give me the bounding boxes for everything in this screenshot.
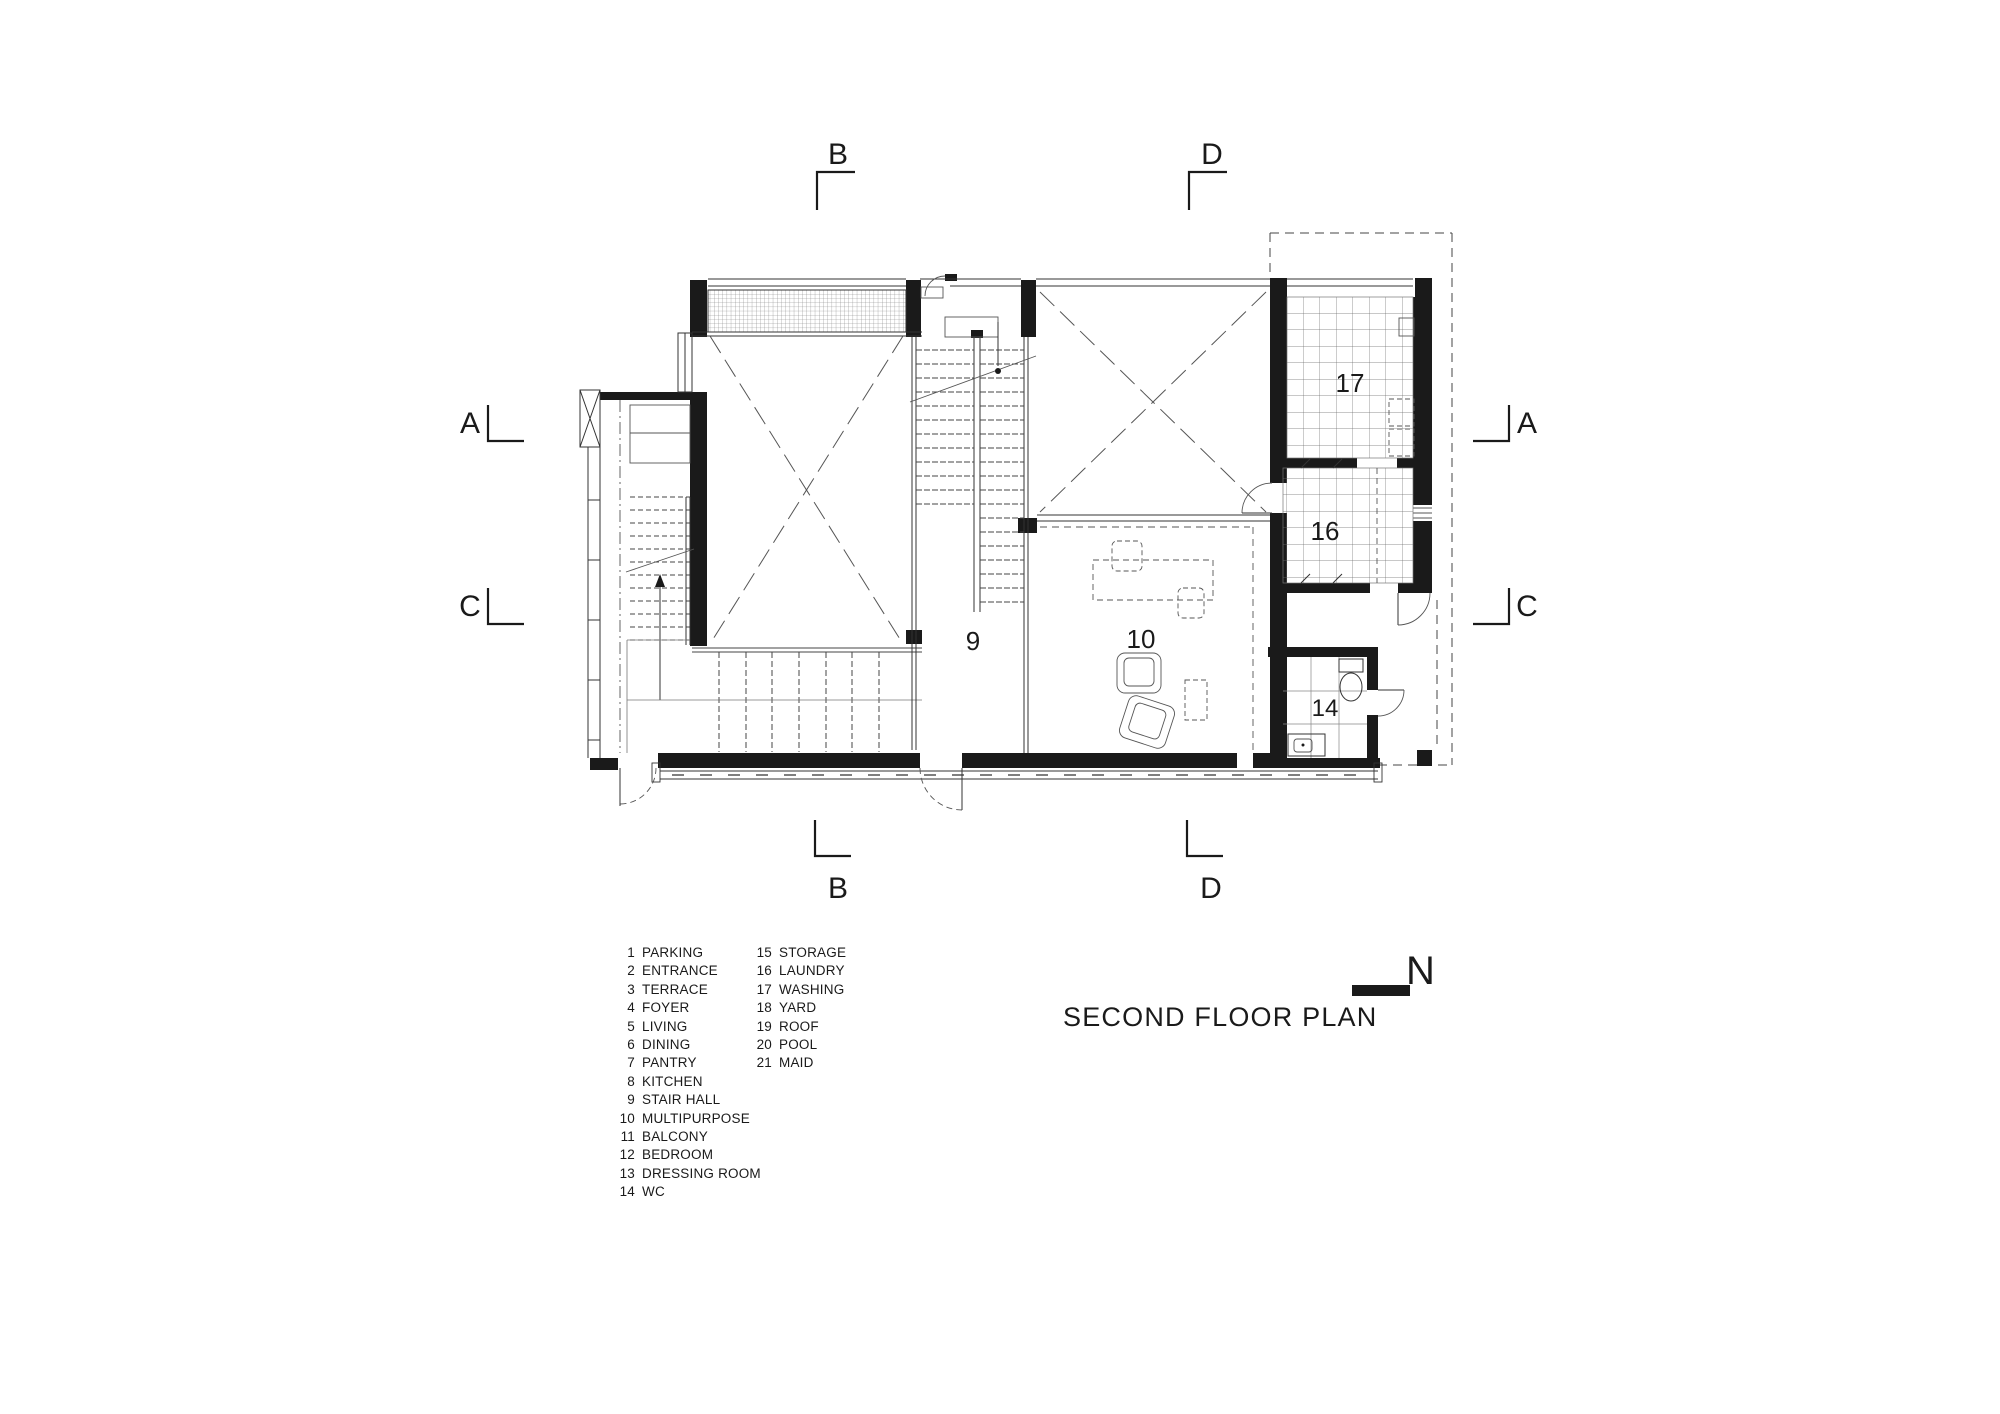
section-mark-c-right [1473, 588, 1509, 624]
section-mark-b-bottom [815, 820, 851, 856]
legend-item: 17WASHING [722, 981, 846, 999]
legend-item: 11BALCONY [585, 1128, 761, 1146]
side-chair [1178, 588, 1204, 618]
desk-chair [1112, 541, 1142, 571]
void-right-x [1037, 292, 1270, 521]
section-mark-b-top [817, 172, 855, 210]
void-left-x [710, 336, 903, 644]
room-label-laundry: 16 [1311, 516, 1340, 546]
legend-item: 8KITCHEN [585, 1073, 761, 1091]
section-label-c-right: C [1516, 590, 1538, 623]
floor-plan-page: B D B D A C A C 9 10 14 16 17 1PARKING 2… [0, 0, 2000, 1414]
room-label-washing: 17 [1336, 368, 1365, 398]
toilet-bowl [1340, 673, 1362, 701]
door-swing [1242, 483, 1272, 513]
legend-item: 15STORAGE [722, 944, 846, 962]
coffee-table [1185, 680, 1207, 720]
armchair-rotated [1117, 694, 1176, 751]
section-label-b-top: B [828, 138, 848, 171]
section-label-a-right: A [1517, 407, 1537, 440]
room-label-multipurpose: 10 [1127, 624, 1156, 654]
section-label-d-top: D [1201, 138, 1223, 171]
section-label-d-bottom: D [1200, 872, 1222, 905]
north-arrow-bar [1352, 985, 1410, 996]
floor-plan-drawing: B D B D A C A C 9 10 14 16 17 [0, 0, 2000, 1414]
section-label-b-bottom: B [828, 872, 848, 905]
legend-column-2: 15STORAGE 16LAUNDRY 17WASHING 18YARD 19R… [722, 944, 846, 1073]
louvre-deck [627, 640, 922, 753]
legend-item: 16LAUNDRY [722, 962, 846, 980]
legend-item: 12BEDROOM [585, 1146, 761, 1164]
section-mark-a-right [1473, 405, 1509, 441]
skylight-hatch-strip [692, 290, 922, 336]
room-laundry [1283, 459, 1430, 625]
main-stair [910, 276, 1036, 753]
room-label-stair-hall: 9 [966, 626, 980, 656]
section-mark-a-left [488, 405, 524, 441]
section-mark-d-top [1189, 172, 1227, 210]
bottom-window-band [620, 763, 1382, 810]
legend-item: 14WC [585, 1183, 761, 1201]
room-label-wc: 14 [1312, 695, 1339, 722]
section-label-c-left: C [459, 590, 481, 623]
legend-item: 18YARD [722, 999, 846, 1017]
top-window-lines [708, 279, 1413, 286]
legend-item: 19ROOF [722, 1018, 846, 1036]
legend-item: 20POOL [722, 1036, 846, 1054]
north-letter: N [1406, 951, 1435, 991]
desk [1093, 560, 1213, 600]
section-mark-d-bottom [1187, 820, 1223, 856]
armchair [1117, 653, 1161, 693]
legend-item: 21MAID [722, 1054, 846, 1072]
section-mark-c-left [488, 588, 524, 624]
door-swing-entry [620, 768, 656, 804]
room-wc [1283, 657, 1404, 758]
toilet-tank [1339, 659, 1363, 672]
legend-item: 13DRESSING ROOM [585, 1165, 761, 1183]
section-label-a-left: A [460, 407, 480, 440]
room-multipurpose-furniture [1040, 483, 1272, 750]
legend-item: 10MULTIPURPOSE [585, 1110, 761, 1128]
legend-item: 9STAIR HALL [585, 1091, 761, 1109]
drawing-title: SECOND FLOOR PLAN [1063, 1002, 1377, 1033]
